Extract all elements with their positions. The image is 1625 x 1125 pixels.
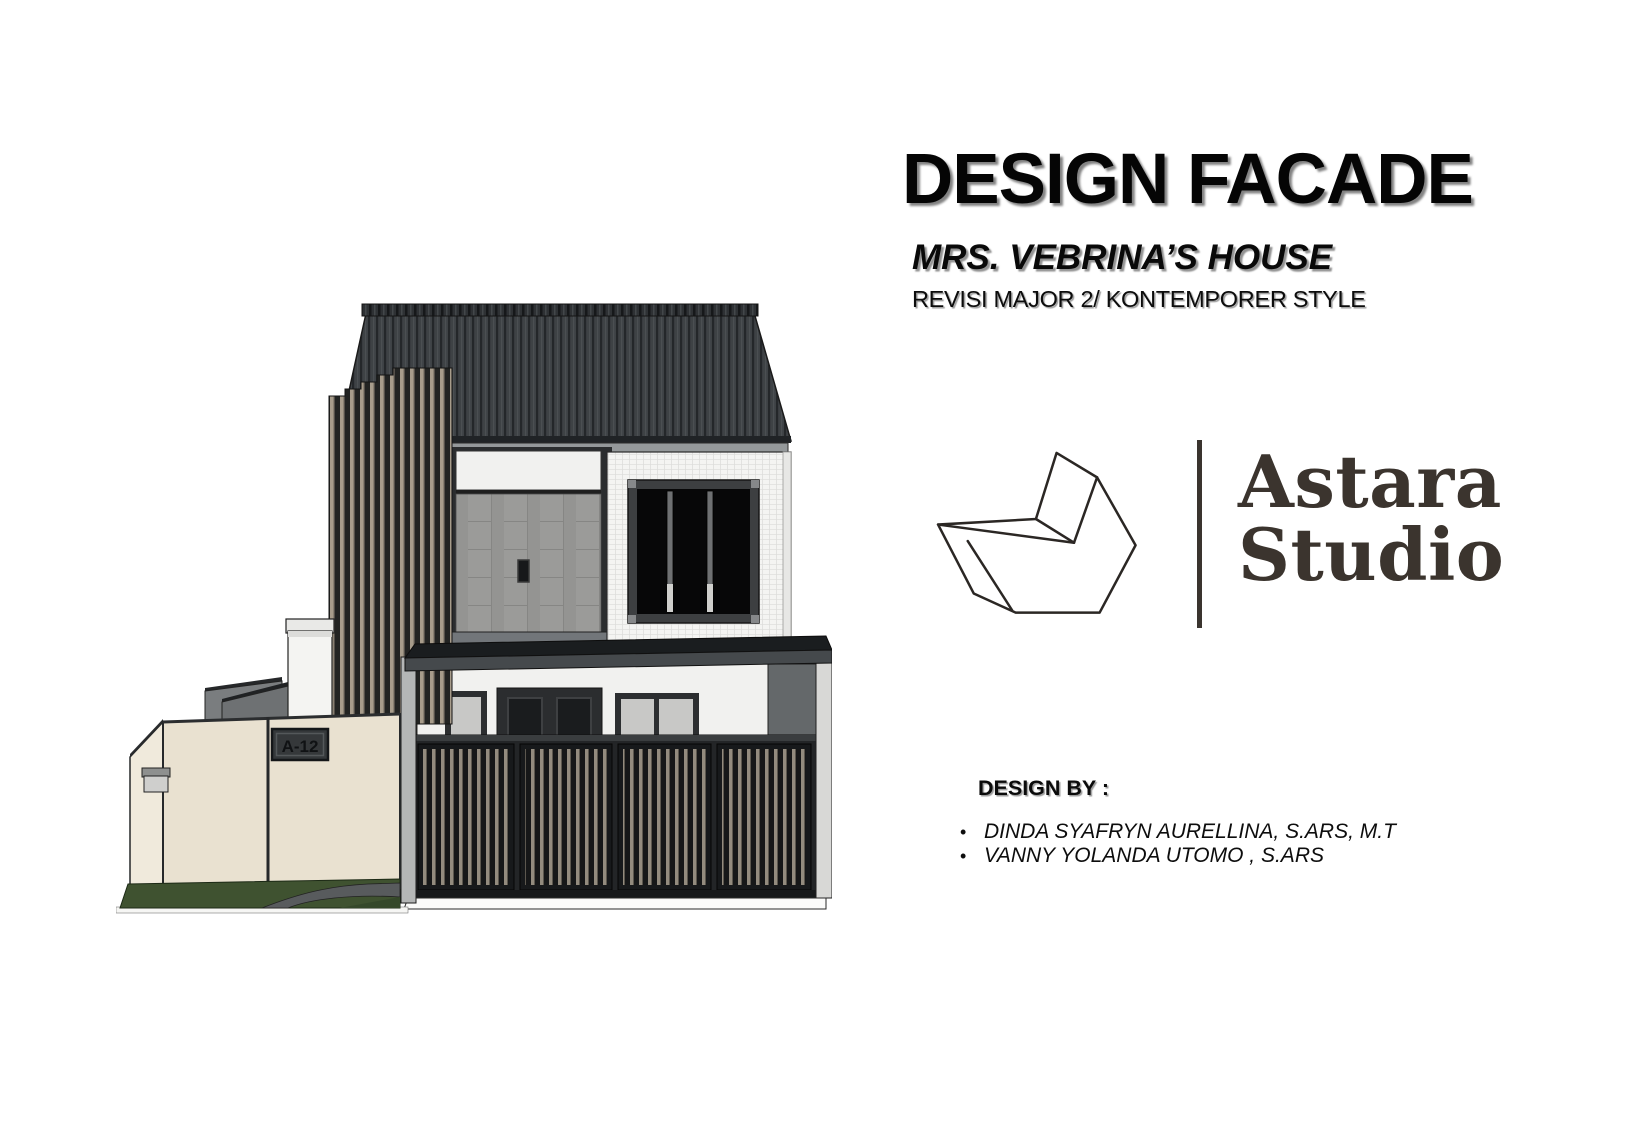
curb [404, 898, 826, 909]
design-by-heading: DESIGN BY : [978, 778, 1109, 800]
canopy-post [401, 657, 416, 903]
ground-gray-side-wall [768, 664, 818, 742]
house-facade-render: A-12 [116, 266, 832, 918]
bullet-icon: • [960, 820, 984, 844]
studio-name-line1: Astara [1238, 445, 1504, 518]
wall-ledge [144, 776, 168, 792]
designer-item: • VANNY YOLANDA UTOMO , S.ARS [960, 844, 1396, 868]
ground-floor [417, 664, 818, 742]
boundary-wall-side-face [130, 722, 163, 890]
revision-note: REVISI MAJOR 2/ KONTEMPORER STYLE [912, 288, 1366, 312]
front-yard [116, 879, 408, 913]
designer-name: DINDA SYAFRYN AURELLINA, S.ARS, M.T [984, 820, 1396, 844]
clerestory-strip [456, 451, 601, 490]
studio-name-line2: Studio [1238, 518, 1504, 591]
house-number-sign: A-12 [272, 729, 328, 760]
house-number-sign-label: A-12 [282, 737, 319, 756]
designer-list: • DINDA SYAFRYN AURELLINA, S.ARS, M.T • … [960, 820, 1396, 868]
project-subtitle: MRS. VEBRINA’S HOUSE [912, 240, 1332, 275]
roof-ridge-cap [362, 304, 758, 316]
upper-floor-right-wall [607, 452, 791, 645]
astara-logo-mark-icon [930, 443, 1145, 630]
page-title: DESIGN FACADE [902, 144, 1473, 215]
designer-name: VANNY YOLANDA UTOMO , S.ARS [984, 844, 1324, 868]
boundary-wall: A-12 [130, 714, 400, 890]
logo-divider [1197, 440, 1202, 628]
right-pillar [816, 650, 832, 898]
white-column [288, 631, 332, 719]
wall-vent [518, 560, 529, 582]
bullet-icon: • [960, 844, 984, 868]
studio-name: Astara Studio [1238, 445, 1504, 591]
presentation-page: A-12 DESIGN FACADE MRS. VEBRINA’S HOUSE … [0, 0, 1625, 1125]
front-door [497, 688, 602, 742]
designer-item: • DINDA SYAFRYN AURELLINA, S.ARS, M.T [960, 820, 1396, 844]
upper-floor-center-panel [447, 447, 612, 644]
upper-window [628, 480, 759, 623]
